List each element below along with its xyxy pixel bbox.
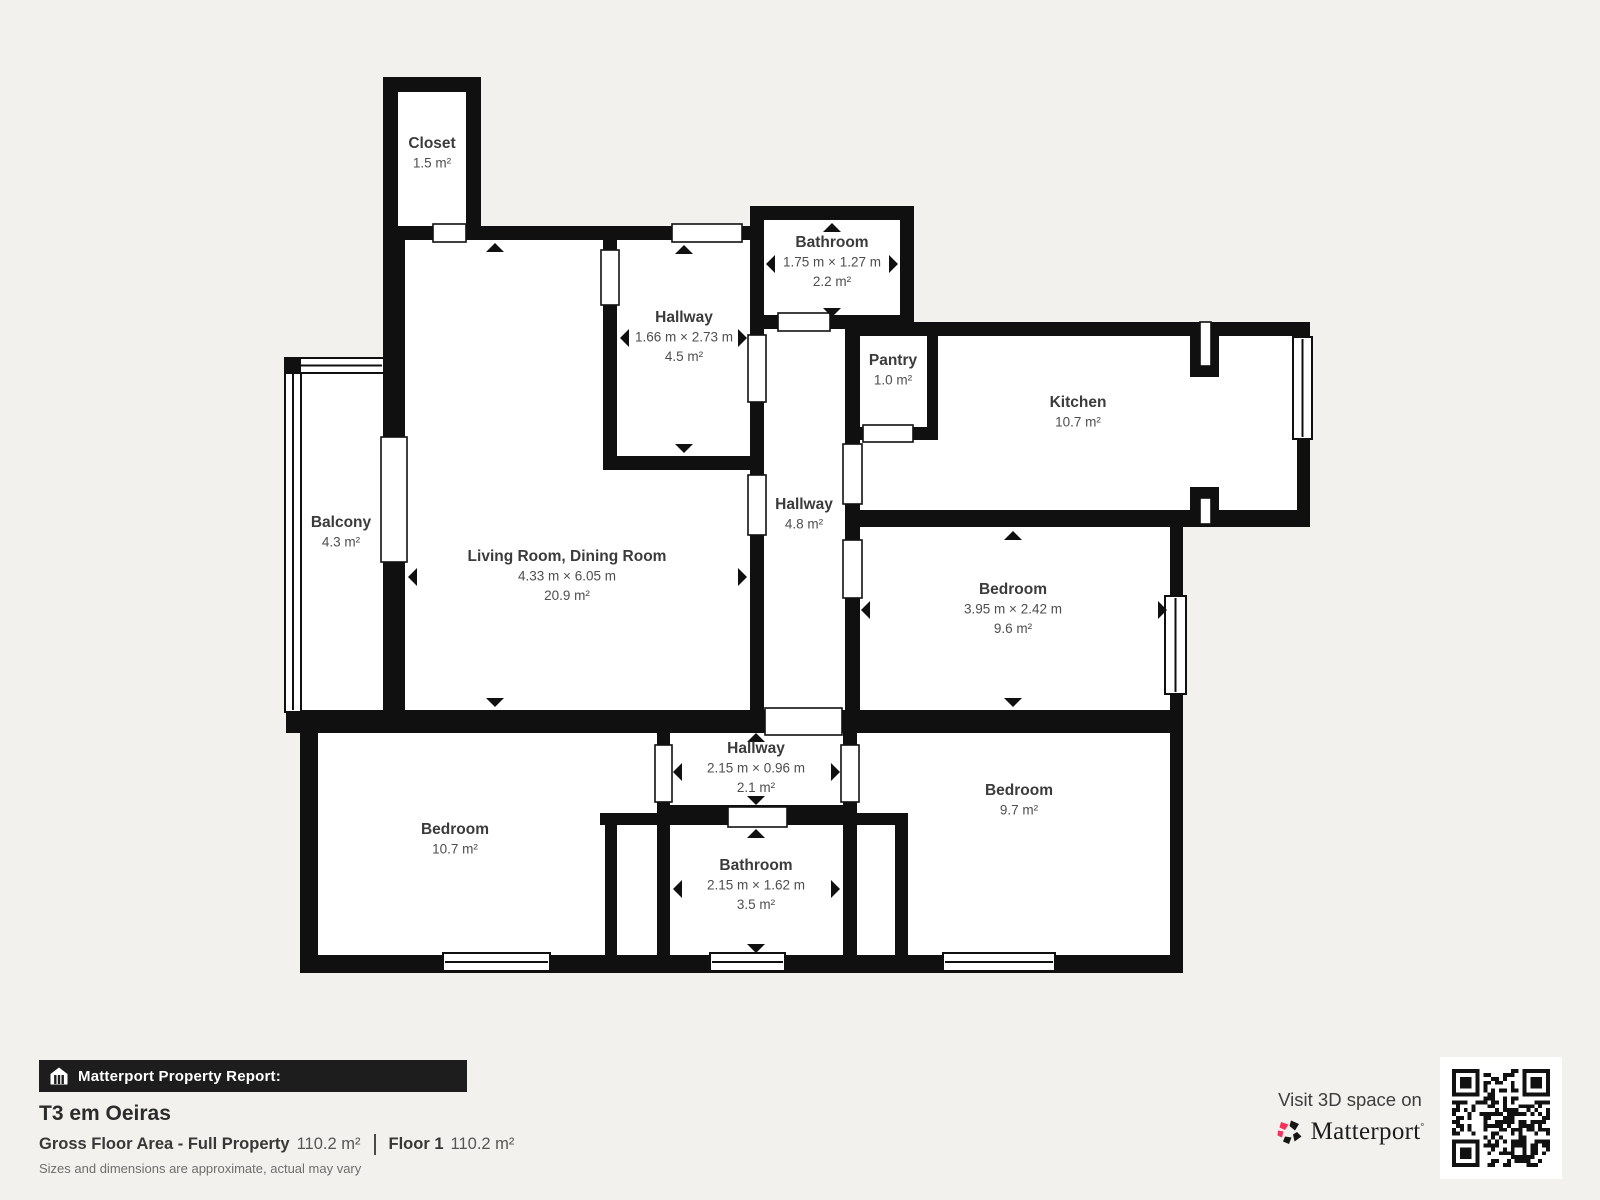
room-dims-living-dining: 4.33 m × 6.05 m <box>518 569 616 584</box>
room-label-bathroom-bottom: Bathroom <box>719 857 792 874</box>
hallway-upper-door <box>601 250 619 305</box>
room-area-pantry: 1.0 m² <box>874 373 913 388</box>
hallway-passage <box>765 708 842 735</box>
room-area-balcony: 4.3 m² <box>322 535 361 550</box>
matterport-floorplan-page: Closet1.5 m²Bathroom1.75 m × 1.27 m2.2 m… <box>0 0 1600 1200</box>
visit-3d-text: Visit 3D space on <box>1249 1089 1451 1111</box>
room-label-hallway-bottom: Hallway <box>727 740 785 757</box>
property-title: T3 em Oeiras <box>39 1102 171 1126</box>
bedroom-right-door <box>843 540 862 598</box>
room-label-balcony: Balcony <box>311 514 372 531</box>
balcony-window-left <box>285 358 301 712</box>
room-area-living-dining: 20.9 m² <box>544 588 590 603</box>
top-wall-opening <box>672 224 742 242</box>
floor-label: Floor 1 <box>389 1135 444 1154</box>
room-area-bathroom-top: 2.2 m² <box>813 274 852 289</box>
bedroom-right-window <box>1165 596 1186 694</box>
qr-code <box>1440 1057 1562 1179</box>
room-area-hallway-upper: 4.5 m² <box>665 349 704 364</box>
visit-3d-block: Visit 3D space on Matterport° <box>1249 1089 1451 1146</box>
room-label-hallway-middle: Hallway <box>775 496 833 513</box>
living-room-door <box>748 475 766 535</box>
room-area-closet: 1.5 m² <box>413 156 452 171</box>
bathroom-top-door <box>778 313 830 331</box>
balcony-door <box>381 437 407 562</box>
house-icon <box>50 1067 68 1085</box>
bedroom-br-door <box>841 745 859 802</box>
room-dims-hallway-bottom: 2.15 m × 0.96 m <box>707 761 805 776</box>
room-dims-bathroom-bottom: 2.15 m × 1.62 m <box>707 878 805 893</box>
bedroom-bl-window <box>443 953 550 971</box>
matterport-wordmark: Matterport° <box>1311 1118 1425 1146</box>
report-bar: Matterport Property Report: <box>39 1060 467 1092</box>
matterport-logo-icon <box>1276 1118 1304 1146</box>
bedroom-bl-door <box>655 745 672 802</box>
room-label-closet: Closet <box>408 135 455 152</box>
room-label-kitchen: Kitchen <box>1050 394 1107 411</box>
room-label-bedroom-right: Bedroom <box>979 581 1047 598</box>
room-area-hallway-bottom: 2.1 m² <box>737 780 776 795</box>
room-area-bathroom-bottom: 3.5 m² <box>737 897 776 912</box>
room-dims-hallway-upper: 1.66 m × 2.73 m <box>635 330 733 345</box>
disclaimer-text: Sizes and dimensions are approximate, ac… <box>39 1161 361 1176</box>
closet-door <box>433 224 466 242</box>
room-bedroom-right <box>858 527 1170 710</box>
gfa-value: 110.2 m² <box>297 1135 361 1154</box>
room-area-bedroom-bottom-right: 9.7 m² <box>1000 803 1039 818</box>
area-summary: Gross Floor Area - Full Property 110.2 m… <box>39 1134 514 1155</box>
bathroom-bottom-door <box>728 807 787 827</box>
room-label-pantry: Pantry <box>869 352 918 369</box>
floorplan: Closet1.5 m²Bathroom1.75 m × 1.27 m2.2 m… <box>0 0 1600 1200</box>
bathroom-bottom-window <box>710 953 785 971</box>
kitchen-jamb-top <box>1200 322 1211 366</box>
kitchen-jamb-bottom <box>1200 498 1211 524</box>
gfa-label: Gross Floor Area - Full Property <box>39 1135 290 1154</box>
floor-value: 110.2 m² <box>451 1135 515 1154</box>
kitchen-window <box>1293 337 1312 439</box>
room-label-bedroom-bottom-right: Bedroom <box>985 782 1053 799</box>
room-area-hallway-middle: 4.8 m² <box>785 517 824 532</box>
room-label-living-dining: Living Room, Dining Room <box>468 548 667 565</box>
kitchen-door <box>843 444 862 504</box>
room-dims-bathroom-top: 1.75 m × 1.27 m <box>783 255 881 270</box>
room-area-bedroom-bottom-left: 10.7 m² <box>432 842 478 857</box>
room-label-hallway-upper: Hallway <box>655 309 713 326</box>
room-dims-bedroom-right: 3.95 m × 2.42 m <box>964 602 1062 617</box>
balcony-corner <box>285 358 301 373</box>
room-label-bedroom-bottom-left: Bedroom <box>421 821 489 838</box>
room-area-bedroom-right: 9.6 m² <box>994 621 1033 636</box>
hallway-middle-door-a <box>748 335 766 402</box>
room-label-bathroom-top: Bathroom <box>795 234 868 251</box>
room-area-kitchen: 10.7 m² <box>1055 415 1101 430</box>
bedroom-br-window <box>943 953 1055 971</box>
separator <box>374 1134 376 1155</box>
report-bar-label: Matterport Property Report: <box>78 1068 281 1085</box>
pantry-door <box>863 425 913 442</box>
